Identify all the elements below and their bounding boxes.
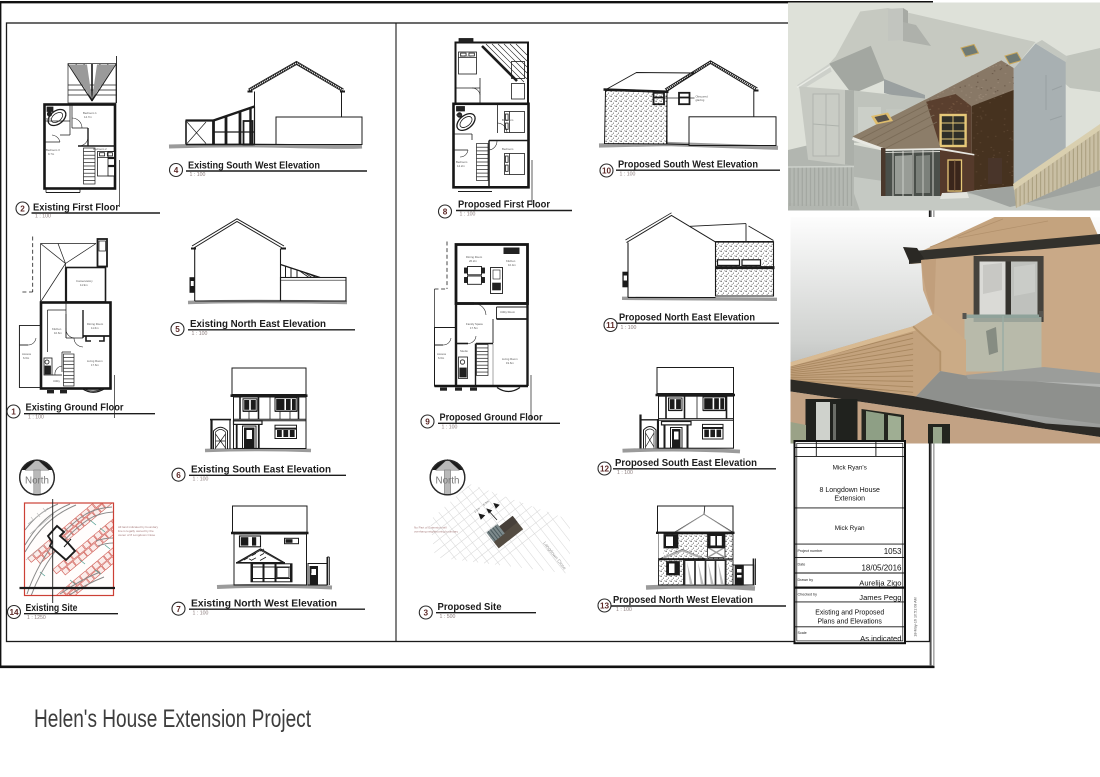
svg-text:Existing North East Elevation: Existing North East Elevation: [190, 319, 326, 330]
svg-text:Existing and Proposed: Existing and Proposed: [815, 610, 884, 617]
svg-text:owner of 8 Longdown Close: owner of 8 Longdown Close: [118, 533, 156, 537]
svg-text:Helen's House Extension Projec: Helen's House Extension Project: [34, 705, 311, 733]
svg-text:18/05/2016: 18/05/2016: [861, 564, 902, 573]
svg-text:Studio: Studio: [460, 349, 468, 353]
svg-text:Drawn by: Drawn by: [798, 578, 814, 582]
svg-text:glazing: glazing: [696, 98, 705, 102]
svg-text:Proposed North East Elevation: Proposed North East Elevation: [619, 313, 755, 324]
svg-text:Bedroom 2: Bedroom 2: [93, 147, 107, 151]
svg-text:1 : 100: 1 : 100: [28, 415, 44, 421]
svg-text:1 : 100: 1 : 100: [616, 607, 632, 613]
svg-text:1 : 100: 1 : 100: [35, 214, 51, 220]
svg-text:11.9m: 11.9m: [80, 283, 88, 287]
svg-text:Existing South East Elevation: Existing South East Elevation: [191, 465, 331, 476]
svg-text:Proposed South East Elevation: Proposed South East Elevation: [615, 458, 757, 469]
svg-text:Utility: Utility: [53, 379, 60, 383]
svg-text:Mick Ryan: Mick Ryan: [835, 525, 865, 532]
svg-text:Proposed South West Elevation: Proposed South West Elevation: [618, 160, 758, 171]
svg-text:6: 6: [176, 471, 181, 480]
svg-text:Extension: Extension: [834, 496, 865, 503]
svg-text:Existing North West Elevation: Existing North West Elevation: [191, 599, 337, 610]
svg-text:Proposed North West Elevation: Proposed North West Elevation: [613, 595, 753, 606]
svg-text:Utility Room: Utility Room: [500, 310, 516, 314]
svg-text:1 : 100: 1 : 100: [193, 477, 209, 483]
svg-text:Existing South West Elevation: Existing South West Elevation: [188, 161, 320, 172]
svg-text:7: 7: [176, 605, 181, 614]
svg-text:Mick Ryan's: Mick Ryan's: [833, 465, 867, 472]
svg-text:Checked by: Checked by: [798, 593, 818, 597]
svg-text:11.6m: 11.6m: [91, 326, 99, 330]
svg-text:10: 10: [602, 167, 612, 176]
svg-text:5: 5: [175, 325, 180, 334]
svg-text:1 : 100: 1 : 100: [621, 325, 637, 331]
svg-text:Plans and Elevations: Plans and Elevations: [818, 619, 883, 626]
svg-text:North: North: [25, 475, 49, 486]
svg-text:Existing First Floor: Existing First Floor: [33, 203, 119, 214]
svg-text:9: 9: [425, 418, 430, 427]
svg-text:1 : 100: 1 : 100: [617, 470, 633, 476]
svg-text:Project number: Project number: [798, 549, 824, 553]
svg-text:14: 14: [9, 608, 19, 617]
svg-text:26.2m: 26.2m: [469, 259, 477, 263]
svg-text:6.6m: 6.6m: [438, 356, 445, 360]
svg-text:9.7m: 9.7m: [48, 152, 55, 156]
svg-text:1 : 500: 1 : 500: [440, 614, 456, 620]
svg-text:10.6m: 10.6m: [54, 331, 62, 335]
svg-text:13: 13: [600, 602, 610, 611]
svg-text:1053: 1053: [884, 547, 902, 556]
svg-text:4: 4: [174, 166, 179, 175]
svg-text:1 : 100: 1 : 100: [192, 331, 208, 337]
svg-text:1 : 1250: 1 : 1250: [27, 615, 46, 621]
svg-text:17.5m: 17.5m: [470, 326, 478, 330]
svg-text:18-May-16 10:51:08 AM: 18-May-16 10:51:08 AM: [914, 597, 918, 636]
svg-text:Aurelija Zigo: Aurelija Zigo: [859, 579, 901, 588]
svg-text:11: 11: [606, 321, 615, 330]
svg-text:1 : 100: 1 : 100: [190, 172, 206, 178]
svg-text:Bath: Bath: [456, 113, 462, 117]
svg-text:Date: Date: [798, 563, 806, 567]
svg-text:14.7m: 14.7m: [84, 115, 92, 119]
svg-text:8 Longdown House: 8 Longdown House: [820, 487, 880, 494]
svg-text:3: 3: [424, 609, 429, 618]
svg-text:17.6m: 17.6m: [91, 363, 99, 367]
svg-text:Existing Site: Existing Site: [26, 603, 78, 614]
svg-text:Proposed Site: Proposed Site: [438, 602, 502, 613]
svg-text:As indicated: As indicated: [860, 634, 901, 643]
svg-text:Bedroom: Bedroom: [502, 147, 514, 151]
svg-text:1: 1: [11, 408, 16, 417]
svg-text:1 : 100: 1 : 100: [460, 212, 476, 218]
svg-text:Bedroom: Bedroom: [460, 54, 472, 58]
svg-text:8: 8: [443, 208, 448, 217]
svg-text:10.4m: 10.4m: [508, 263, 516, 267]
svg-text:12: 12: [600, 465, 610, 474]
svg-text:James Pegg: James Pegg: [859, 593, 901, 602]
svg-text:1 : 100: 1 : 100: [620, 172, 636, 178]
svg-text:Scale: Scale: [798, 631, 807, 635]
svg-text:Bath: Bath: [46, 117, 52, 121]
svg-text:Proposed First Floor: Proposed First Floor: [458, 200, 550, 211]
svg-text:North: North: [436, 475, 460, 486]
svg-text:1 : 100: 1 : 100: [193, 611, 209, 617]
svg-text:1 : 100: 1 : 100: [442, 425, 458, 431]
svg-text:19.6m: 19.6m: [506, 361, 514, 365]
svg-text:Proposed Ground Floor: Proposed Ground Floor: [440, 413, 543, 424]
svg-text:Bedroom: Bedroom: [502, 118, 514, 122]
svg-text:Existing Ground Floor: Existing Ground Floor: [26, 403, 124, 414]
svg-text:2: 2: [20, 205, 25, 214]
svg-text:overhang neighbouring boundary: overhang neighbouring boundary: [414, 530, 459, 534]
svg-text:14.2m: 14.2m: [457, 164, 465, 168]
svg-text:6.6m: 6.6m: [23, 356, 30, 360]
